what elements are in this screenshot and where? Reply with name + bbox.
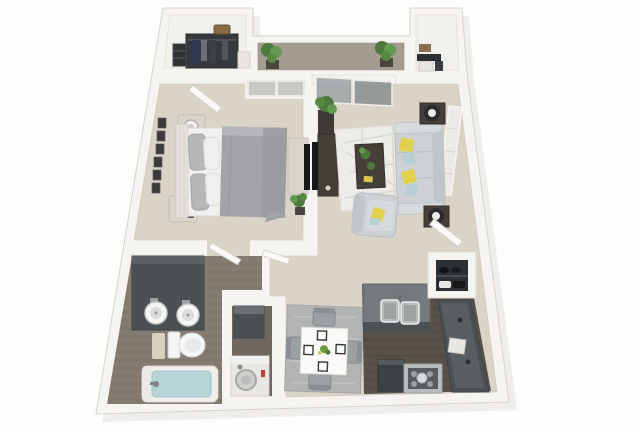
- sliding-glass-door-pane-right: [354, 80, 392, 106]
- pillow-blue: [405, 184, 417, 196]
- bathtub: [142, 366, 218, 402]
- counter-appliance: [448, 338, 466, 354]
- bedroom-window-pane-left: [249, 82, 275, 95]
- pillow-white: [203, 137, 220, 170]
- storage-box-white: [419, 62, 433, 71]
- toilet: [168, 332, 205, 358]
- console-item: [326, 186, 331, 191]
- living-media-console: [312, 134, 338, 196]
- table-book: [363, 176, 372, 183]
- closet-storage-box: [238, 52, 250, 68]
- washer-knob: [238, 365, 243, 370]
- sofa: [393, 121, 445, 215]
- hanging-clothes-charcoal: [209, 40, 216, 63]
- headboard: [176, 124, 188, 218]
- washer-button-red: [261, 370, 265, 377]
- shoe-closet: [428, 252, 476, 298]
- dining-chair-bottom: [309, 374, 332, 391]
- coffee-table: [355, 143, 385, 188]
- bedroom-window-pane-right: [278, 82, 303, 95]
- floor-plan-stage: [0, 0, 640, 432]
- bedroom-media-console: [288, 138, 310, 194]
- tv: [312, 142, 318, 190]
- shoes-white: [439, 281, 451, 288]
- toilet-tank: [168, 332, 180, 358]
- side-table-top: [420, 103, 445, 124]
- range: [404, 364, 442, 393]
- bath-mat: [152, 333, 165, 359]
- bed-duvet: [220, 126, 289, 223]
- vanity-counter-edge: [132, 256, 204, 264]
- peninsula-counter: [363, 284, 430, 332]
- pillow-yellow: [399, 138, 414, 153]
- bed: [176, 124, 289, 223]
- storage-shelf: [417, 54, 441, 61]
- closet-shelf-stack: [173, 44, 186, 66]
- floor-plan-svg: [0, 0, 640, 432]
- pillow-blue: [402, 151, 416, 165]
- hanging-clothes-gray: [201, 40, 207, 61]
- washer: [231, 356, 269, 396]
- wall-basket: [214, 25, 230, 34]
- shoes-dark: [453, 281, 465, 288]
- pillow-blue: [369, 218, 379, 225]
- pillow-white: [205, 173, 222, 206]
- storage-box-brown: [419, 44, 431, 52]
- dining-area: [285, 305, 364, 394]
- kitchen-faucet: [398, 295, 403, 300]
- hanging-clothes-slate: [222, 40, 228, 60]
- hanging-clothes-navy: [192, 40, 199, 64]
- armchair: [351, 192, 398, 238]
- tv: [304, 144, 310, 190]
- pot: [417, 373, 427, 383]
- counter-front: [363, 322, 430, 332]
- storage-box-dark: [435, 61, 443, 71]
- plant-pot: [295, 207, 305, 215]
- tub-water: [152, 371, 211, 397]
- dining-chair-top: [313, 308, 336, 327]
